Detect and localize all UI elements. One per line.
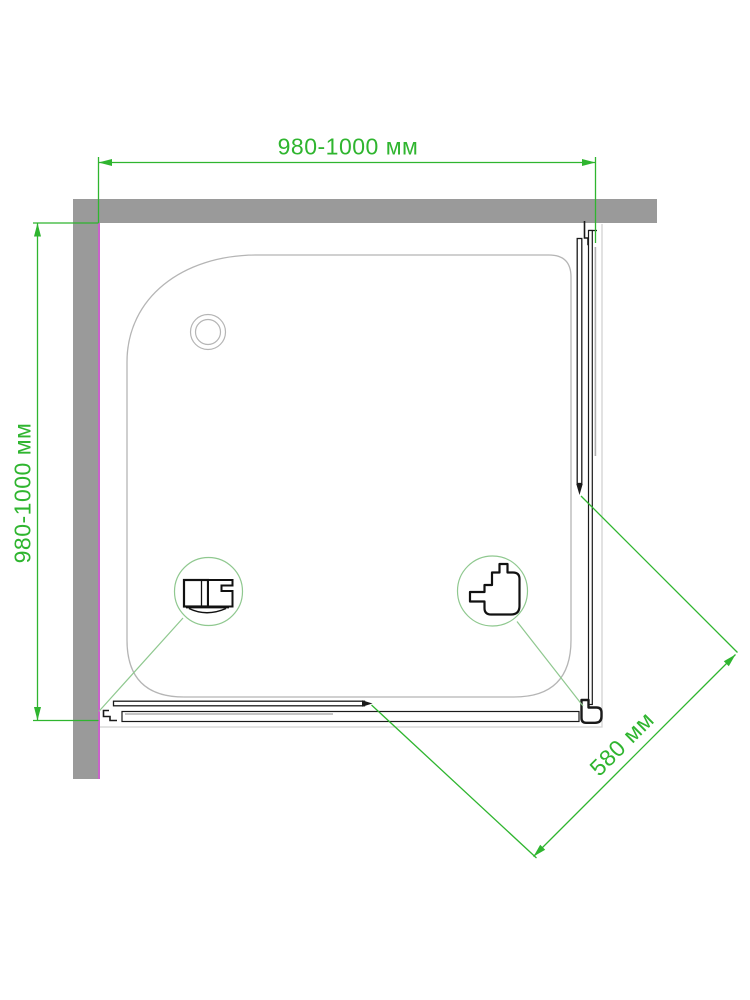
left-depth-dimension-label: 980-1000 мм (10, 423, 37, 564)
bottom-sliding-door (114, 700, 373, 706)
top-wall (73, 199, 657, 223)
right-sliding-door (576, 239, 582, 496)
left-wall (73, 199, 98, 779)
bottom-fixed-panel-frame (122, 712, 579, 722)
bottom-wall-profile (104, 711, 118, 721)
top-width-dimension-label: 980-1000 мм (278, 134, 419, 161)
technical-drawing-canvas: 980-1000 мм 980-1000 мм 580 мм (0, 0, 750, 1000)
right-fixed-panel-frame (589, 231, 596, 705)
